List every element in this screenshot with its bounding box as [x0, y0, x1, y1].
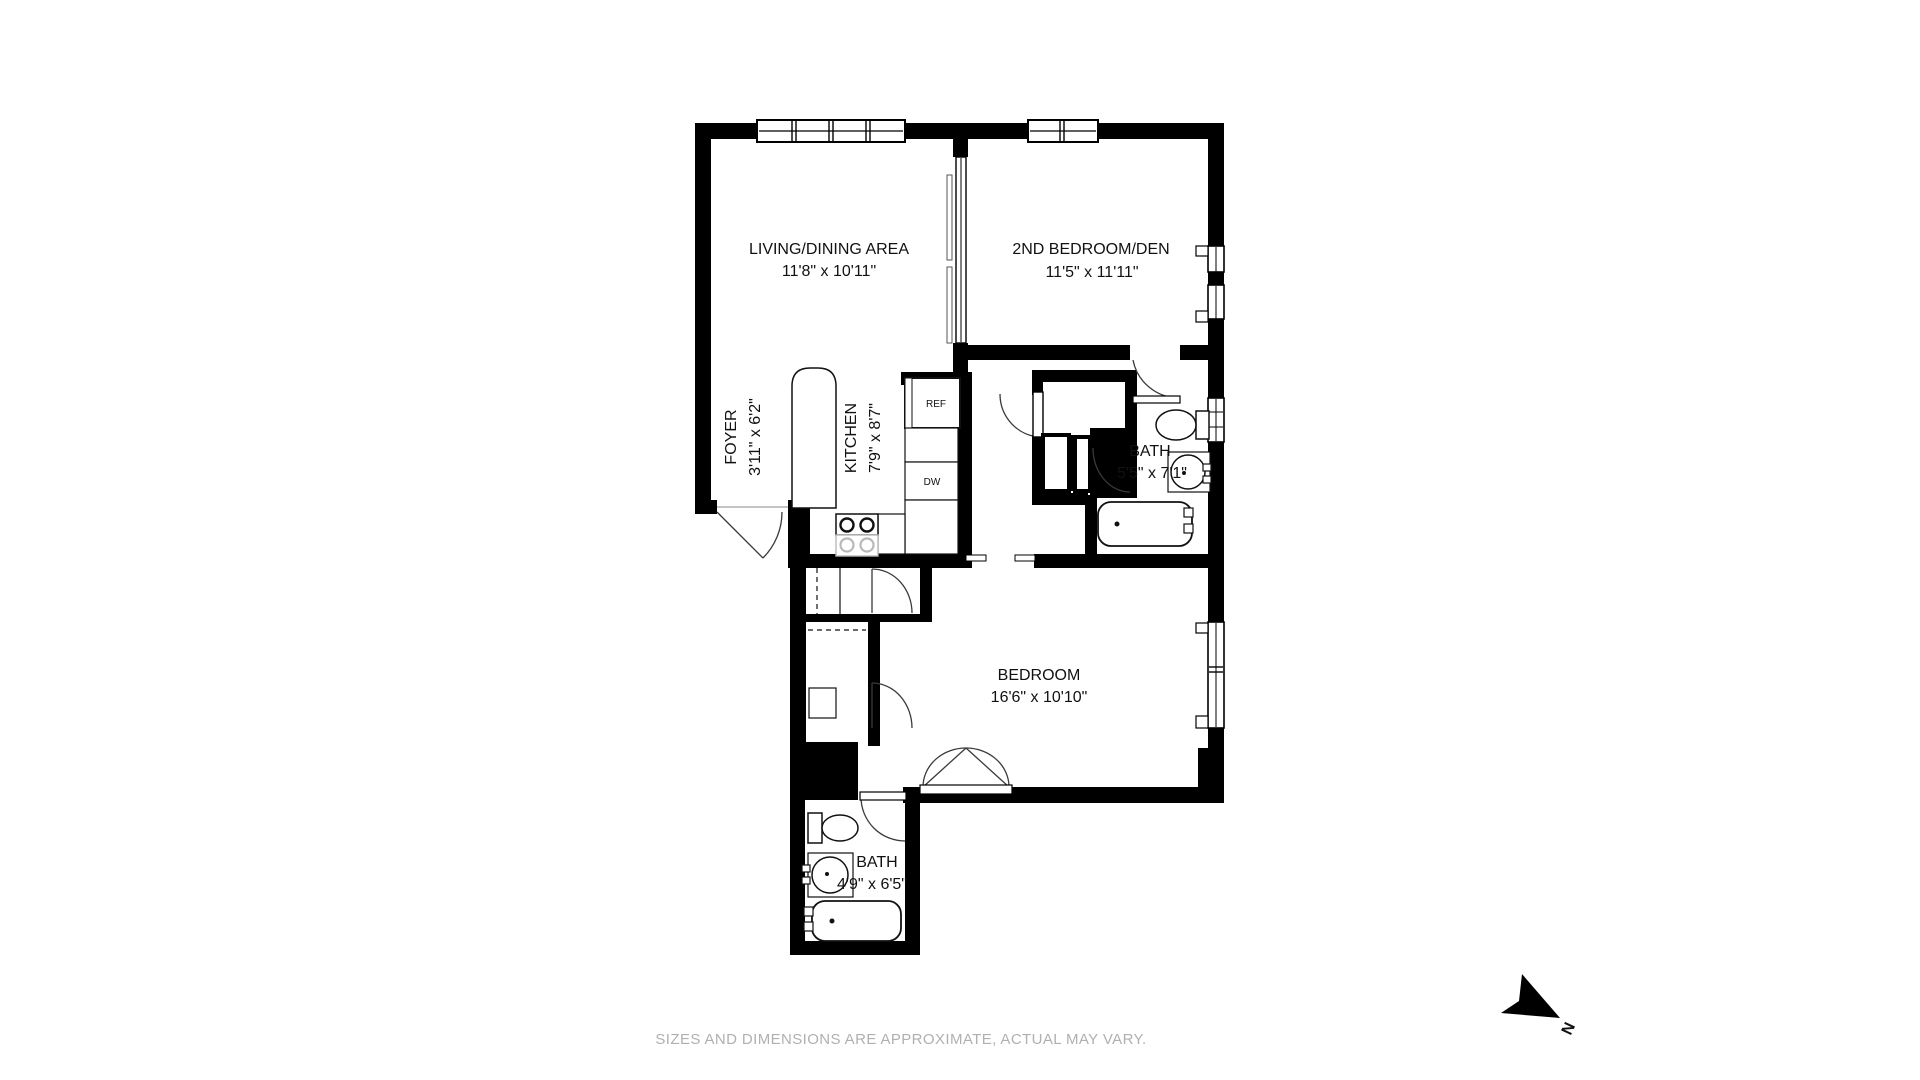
wall-bath2-left	[790, 742, 805, 955]
wall-bedroom-corner-step	[1198, 748, 1224, 803]
wall-closetA-right	[920, 568, 932, 614]
door-entry	[717, 507, 788, 558]
label-foyer-dims: 3'11" x 6'2"	[747, 398, 764, 476]
window-bath-right	[1208, 398, 1224, 442]
window-living-top	[757, 120, 905, 142]
wall-bath1-left-lower	[1085, 495, 1097, 554]
label-foyer-name: FOYER	[723, 409, 740, 464]
stove	[836, 514, 878, 556]
door-bath-lower	[860, 792, 906, 841]
toilet-upper	[1156, 410, 1209, 440]
doorway-sills-bedroom	[966, 555, 1035, 561]
wall-bath2-bottom	[790, 941, 920, 955]
closet-slot-2	[1075, 437, 1090, 491]
label-bedroom-name: BEDROOM	[998, 667, 1081, 684]
label-living-dining-dims: 11'8" x 10'11"	[782, 263, 876, 280]
kitchen-island	[792, 368, 836, 508]
wall-hall-bottom	[1034, 554, 1224, 568]
wall-closetA-bottom	[806, 614, 932, 622]
label-2nd-bedroom-name: 2ND BEDROOM/DEN	[1012, 241, 1169, 258]
door-hall-2ndbedroom	[1133, 360, 1180, 403]
kitchen-counter-1	[905, 428, 958, 462]
label-2nd-bedroom-dims: 11'5" x 11'11"	[1045, 264, 1138, 281]
toilet-lower	[808, 813, 858, 843]
wall-2ndbr-bottom-right	[1180, 345, 1224, 360]
window-partition-glass	[947, 157, 966, 343]
bathtub-lower	[804, 901, 901, 941]
door-closet-upper	[1000, 392, 1043, 437]
wall-closet-upper-top	[1032, 370, 1137, 382]
label-bath-lower-name: BATH	[856, 854, 897, 871]
label-bath-upper-name: BATH	[1129, 443, 1170, 460]
kitchen-counter-2	[905, 500, 958, 554]
wall-bath2-right	[905, 800, 920, 955]
closetB-box	[809, 688, 836, 718]
wall-foyer-bottom	[695, 500, 717, 514]
label-kitchen-dims: 7'9" x 8'7"	[867, 403, 884, 473]
bathtub-upper	[1098, 502, 1193, 546]
label-bath-lower-dims: 4'9" x 6'5"	[837, 876, 907, 893]
wall-hall-left	[790, 568, 806, 742]
north-arrow-icon	[1501, 974, 1560, 1018]
wall-2ndbr-bottom-left	[953, 345, 1130, 360]
hall-closets	[808, 568, 866, 718]
window-2ndbedroom-top	[1028, 120, 1098, 142]
label-bath-upper-dims: 5'5" x 7'1"	[1117, 465, 1187, 482]
north-label: N	[1557, 1019, 1577, 1037]
wall-partition-top	[953, 123, 968, 157]
label-bedroom-dims: 16'6" x 10'10"	[991, 689, 1088, 706]
floorplan: LIVING/DINING AREA 11'8" x 10'11" 2ND BE…	[680, 95, 1240, 975]
page-background: LIVING/DINING AREA 11'8" x 10'11" 2ND BE…	[0, 0, 1920, 1080]
north-arrow: N	[1488, 958, 1598, 1038]
door-bedroom-closet-double	[920, 748, 1012, 794]
floorplan-svg: LIVING/DINING AREA 11'8" x 10'11" 2ND BE…	[680, 95, 1240, 975]
door-closetA	[872, 569, 912, 613]
wall-closet-upper-left-a	[1032, 370, 1043, 395]
closet-slot-1	[1043, 435, 1069, 491]
disclaimer-text: SIZES AND DIMENSIONS ARE APPROXIMATE, AC…	[561, 1031, 1241, 1048]
label-living-dining-name: LIVING/DINING AREA	[749, 241, 909, 258]
label-dishwasher: DW	[924, 477, 941, 488]
window-bedroom-right	[1196, 622, 1224, 728]
kitchen-counter-3	[878, 514, 905, 554]
wall-closet-upper-cap	[1032, 493, 1088, 505]
wall-kitchen-bottom	[806, 554, 967, 568]
wall-left	[695, 123, 711, 514]
label-kitchen-name: KITCHEN	[843, 403, 860, 473]
label-refrigerator: REF	[926, 399, 946, 410]
